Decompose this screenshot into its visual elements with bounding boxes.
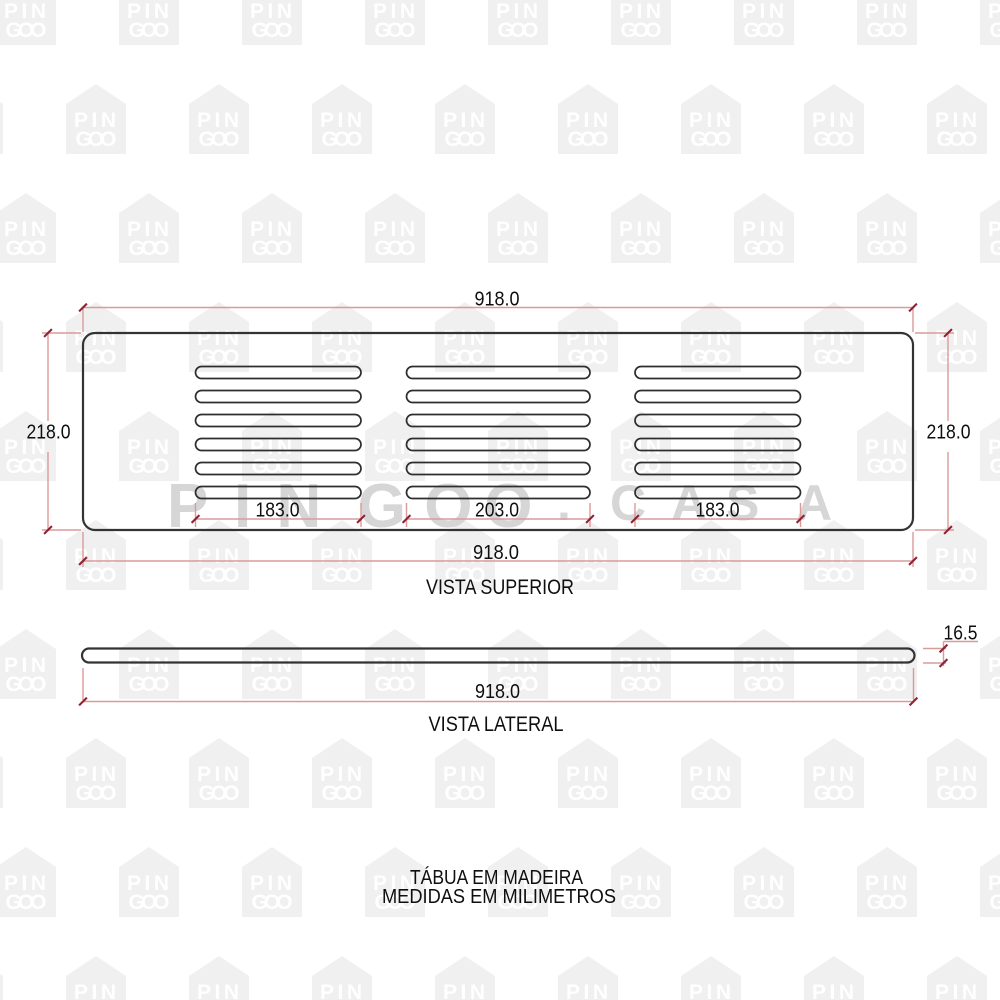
svg-text:183.0: 183.0 (256, 500, 300, 522)
svg-text:918.0: 918.0 (475, 289, 520, 311)
svg-text:218.0: 218.0 (27, 422, 71, 444)
svg-text:183.0: 183.0 (696, 500, 740, 522)
svg-text:218.0: 218.0 (927, 422, 971, 444)
svg-text:918.0: 918.0 (473, 542, 519, 564)
svg-text:918.0: 918.0 (475, 681, 520, 703)
svg-text:16.5: 16.5 (944, 623, 978, 645)
svg-text:VISTA SUPERIOR: VISTA SUPERIOR (426, 576, 574, 599)
svg-text:203.0: 203.0 (475, 500, 519, 522)
svg-text:MEDIDAS EM MILIMETROS: MEDIDAS EM MILIMETROS (382, 886, 616, 908)
svg-text:VISTA LATERAL: VISTA LATERAL (429, 713, 564, 736)
